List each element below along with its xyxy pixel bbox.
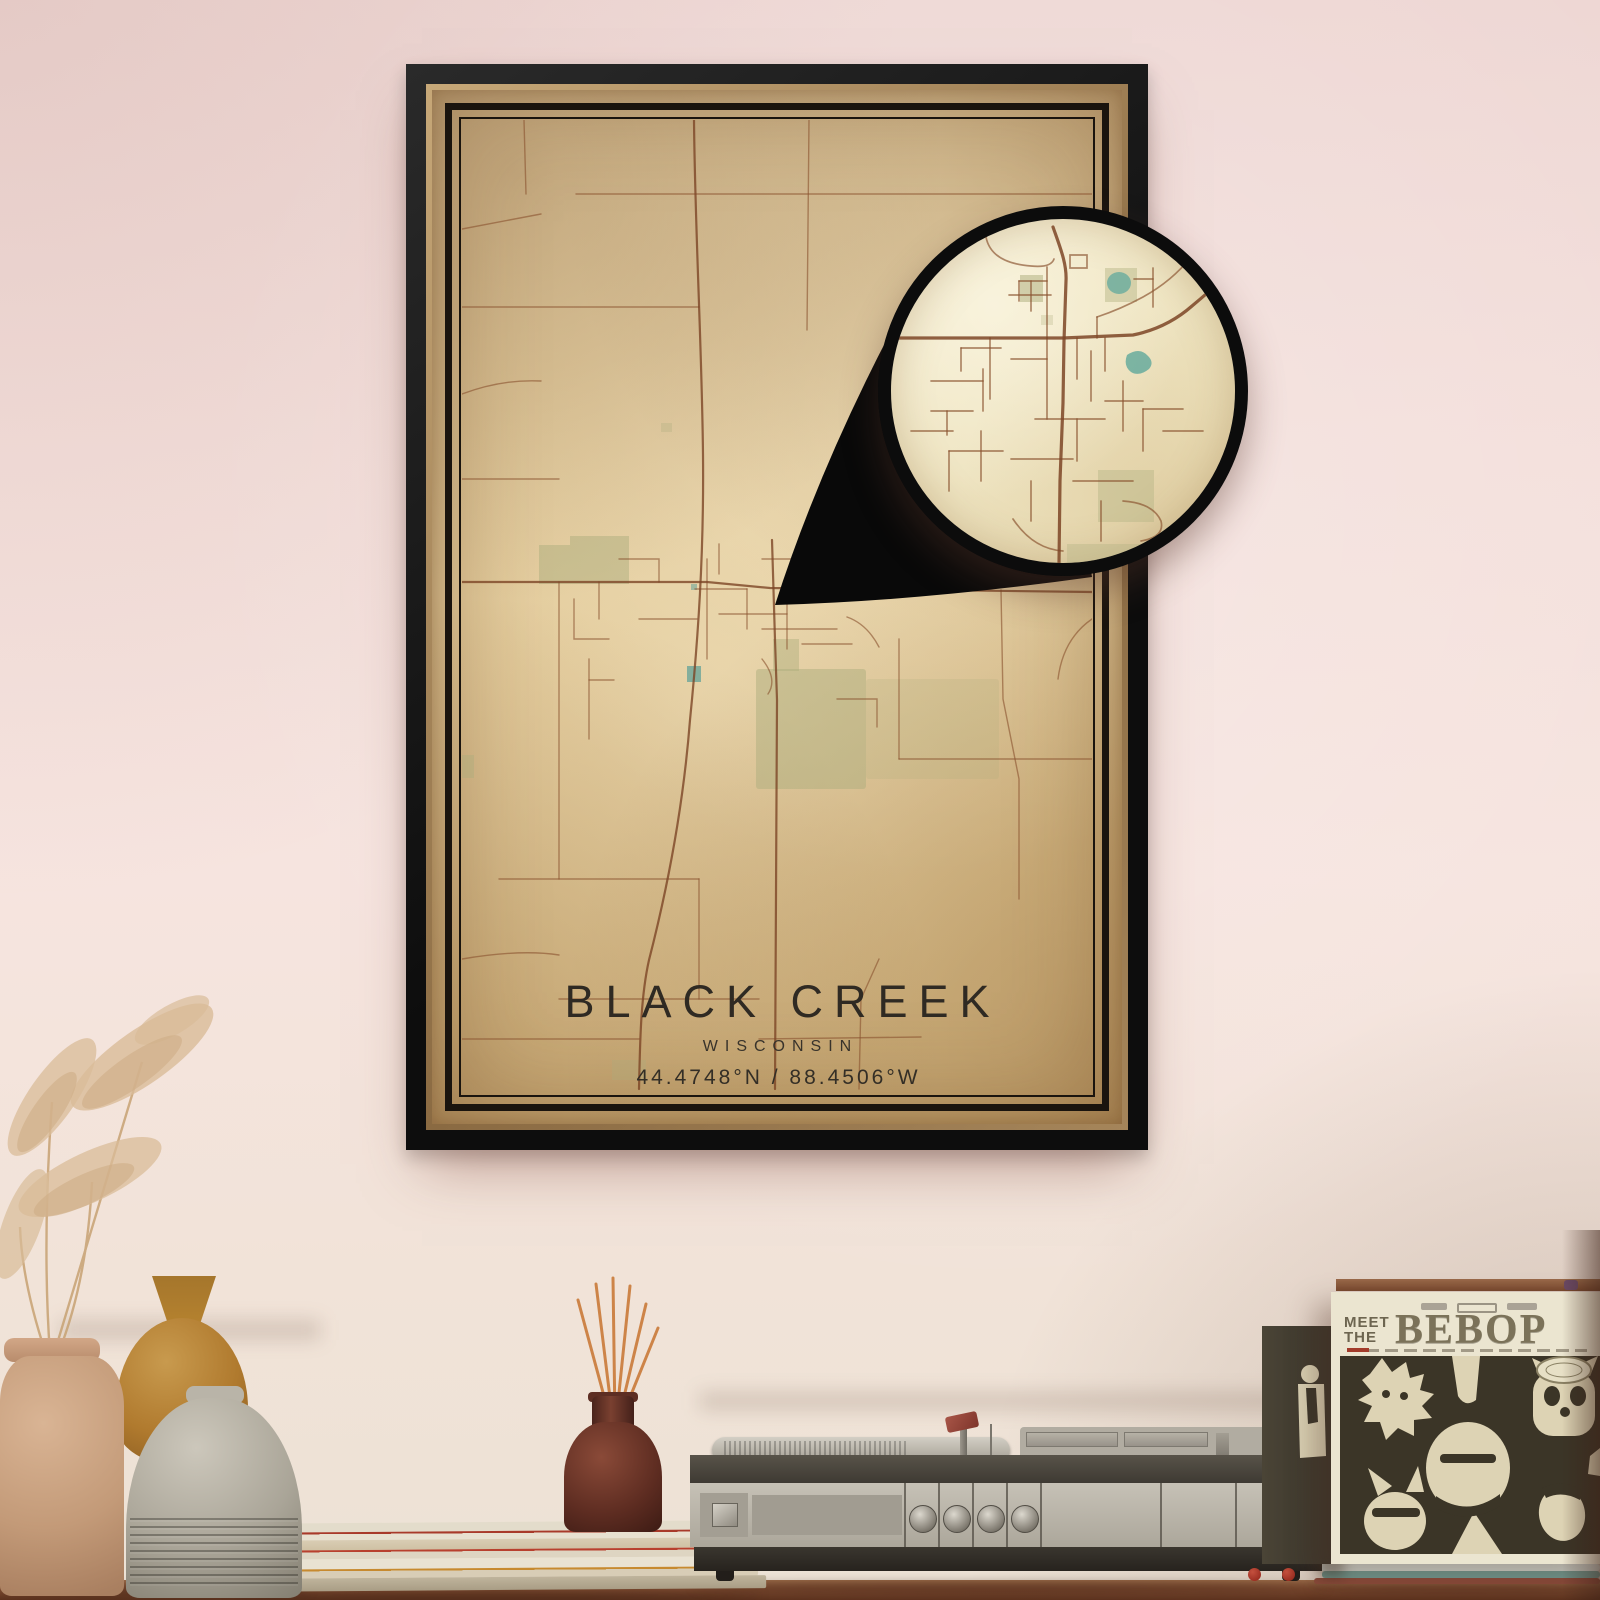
sleeve2-figure <box>1262 1326 1334 1564</box>
scene: BLACK CREEK WISCONSIN 44.4748°N / 88.450… <box>0 0 1600 1600</box>
control-knob <box>943 1505 971 1533</box>
callout-circle <box>878 206 1248 576</box>
panel-groove <box>904 1483 906 1547</box>
panel-groove <box>1006 1483 1008 1547</box>
poster-title: BLACK CREEK <box>432 976 1133 1028</box>
sleeve-credits-red <box>1347 1348 1369 1352</box>
sleeve-title-meet-the: MEET THE <box>1344 1315 1390 1345</box>
vase-tan <box>0 1356 124 1596</box>
player-front-panel <box>690 1483 1326 1547</box>
sleeve-title-the: THE <box>1344 1330 1390 1345</box>
record-player <box>690 1408 1326 1586</box>
callout-parks <box>1020 268 1154 563</box>
records-shadow <box>1310 1584 1600 1592</box>
sleeve-photo <box>1340 1356 1600 1554</box>
tonearm <box>945 1411 980 1433</box>
player-base <box>694 1547 1322 1571</box>
sleeve-title-main: BEBOP <box>1395 1306 1547 1354</box>
antenna <box>990 1424 992 1456</box>
callout-map <box>891 219 1235 563</box>
poster-coordinates: 44.4748°N / 88.4506°W <box>432 1066 1125 1090</box>
control-knob <box>909 1505 937 1533</box>
control-knob <box>1011 1505 1039 1533</box>
record-edge <box>1306 1564 1600 1571</box>
cassette-lid <box>1026 1432 1118 1447</box>
panel-groove <box>972 1483 974 1547</box>
callout-minor-roads <box>911 237 1203 551</box>
panel-groove <box>1235 1483 1237 1547</box>
red-cap <box>1282 1568 1295 1581</box>
panel-groove <box>938 1483 940 1547</box>
player-foot <box>716 1571 734 1581</box>
record-sleeve: MEET THE BEBOP <box>1331 1292 1600 1564</box>
tonearm-post <box>960 1428 967 1456</box>
player-top-deck <box>690 1455 1326 1483</box>
shelf-edge <box>1336 1279 1600 1291</box>
preset-keys <box>752 1495 902 1535</box>
record-edge <box>1314 1578 1600 1584</box>
record-edge <box>1322 1571 1600 1578</box>
callout-main-roads <box>891 227 1225 563</box>
edge-shadow <box>1562 1230 1600 1600</box>
sleeve-collage <box>1340 1356 1600 1554</box>
map-title-block: BLACK CREEK WISCONSIN 44.4748°N / 88.450… <box>432 976 1122 1090</box>
cassette-lid <box>1124 1432 1208 1447</box>
poster-subtitle: WISCONSIN <box>432 1038 1129 1056</box>
sleeve-credits-line <box>1347 1349 1587 1352</box>
red-cap <box>1248 1568 1261 1581</box>
reed-diffuser <box>564 1422 662 1532</box>
vase-ribs <box>130 1518 299 1590</box>
second-record-sleeve <box>1262 1326 1334 1564</box>
sleeve-title-meet: MEET <box>1344 1315 1390 1330</box>
power-button <box>712 1503 738 1527</box>
panel-groove <box>1160 1483 1162 1547</box>
callout-water <box>1107 272 1152 374</box>
book <box>226 1575 766 1592</box>
control-knob <box>977 1505 1005 1533</box>
panel-groove <box>1040 1483 1042 1547</box>
